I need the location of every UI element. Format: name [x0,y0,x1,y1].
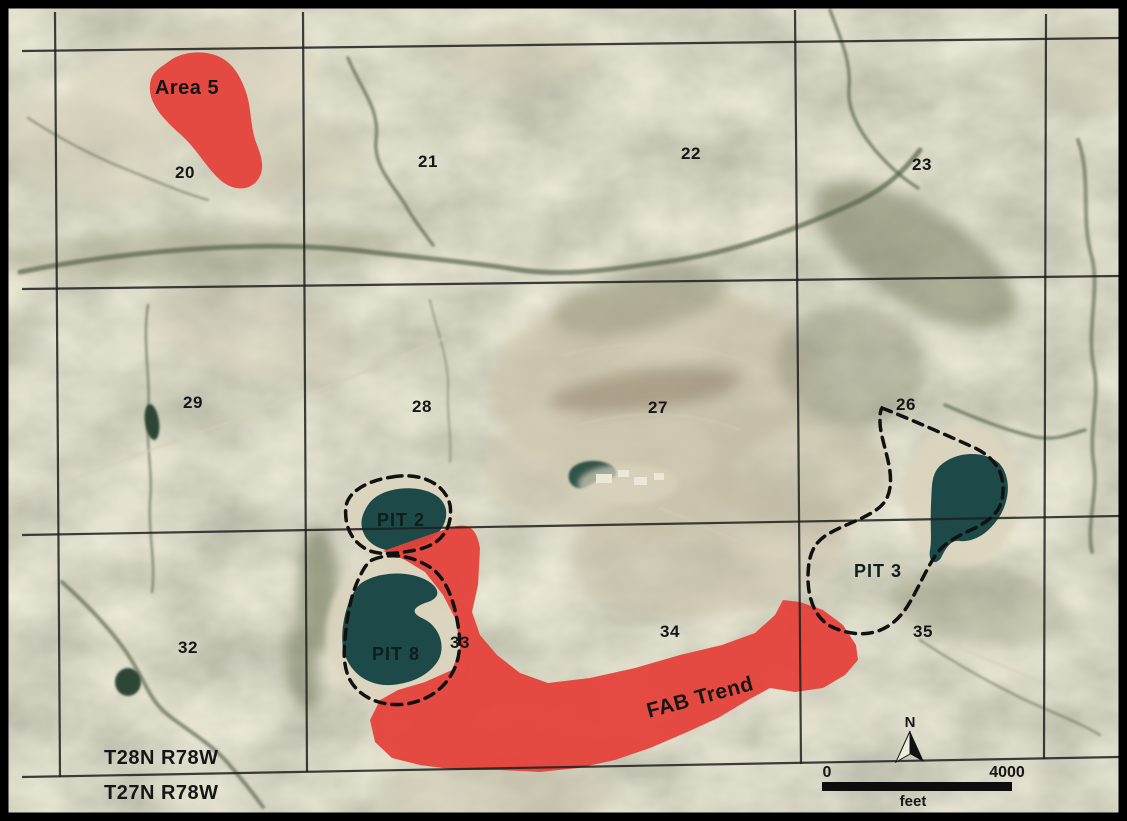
section-label-28: 28 [412,397,432,416]
section-label-35: 35 [913,622,933,641]
section-label-22: 22 [681,144,701,163]
scale-end-label: 4000 [989,764,1025,781]
township-label-north: T28N R78W [104,747,219,769]
section-label-32: 32 [178,638,198,657]
aerial-map-svg: Area 5 PIT 2 PIT 8 PIT 3 FAB Trend 20 21… [0,0,1127,821]
map-frame: Area 5 PIT 2 PIT 8 PIT 3 FAB Trend 20 21… [0,0,1127,821]
section-label-29: 29 [183,393,203,412]
pit3-label: PIT 3 [854,561,902,581]
facility-buildings [578,464,678,504]
pit2-label: PIT 2 [377,510,425,530]
section-label-27: 27 [648,398,668,417]
section-label-33: 33 [450,633,470,652]
pit8-label: PIT 8 [372,644,420,664]
scale-start-label: 0 [823,764,832,781]
pit8-lake [342,573,441,685]
section-label-20: 20 [175,163,195,182]
scale-bar-rect [822,782,1012,791]
township-label-south: T27N R78W [104,782,219,804]
area5-label: Area 5 [155,77,219,99]
north-label: N [905,714,916,731]
section-label-26: 26 [896,395,916,414]
scale-unit-label: feet [900,793,927,810]
section-label-23: 23 [912,155,932,174]
section-label-21: 21 [418,152,438,171]
section-label-34: 34 [660,622,680,641]
